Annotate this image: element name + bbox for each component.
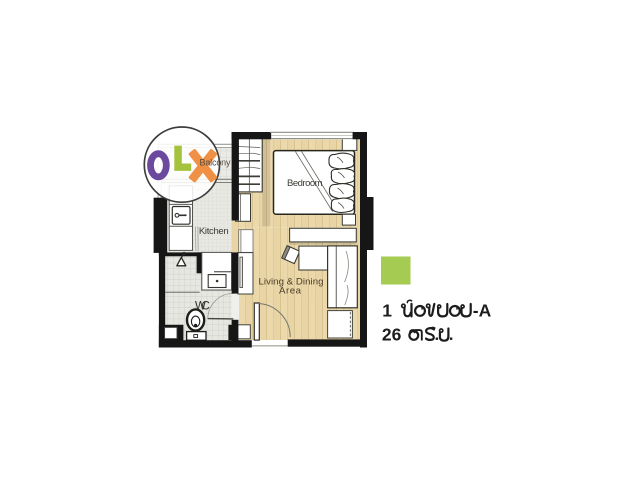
svg-text:Balcony: Balcony bbox=[200, 158, 232, 168]
svg-text:WC: WC bbox=[195, 301, 210, 313]
svg-text:26: 26 bbox=[382, 325, 402, 345]
svg-text:1: 1 bbox=[382, 301, 392, 321]
svg-text:Area: Area bbox=[279, 285, 302, 296]
svg-text:-A: -A bbox=[473, 301, 492, 321]
svg-text:Bedroom: Bedroom bbox=[287, 178, 323, 189]
svg-text:Kitchen: Kitchen bbox=[199, 226, 229, 237]
